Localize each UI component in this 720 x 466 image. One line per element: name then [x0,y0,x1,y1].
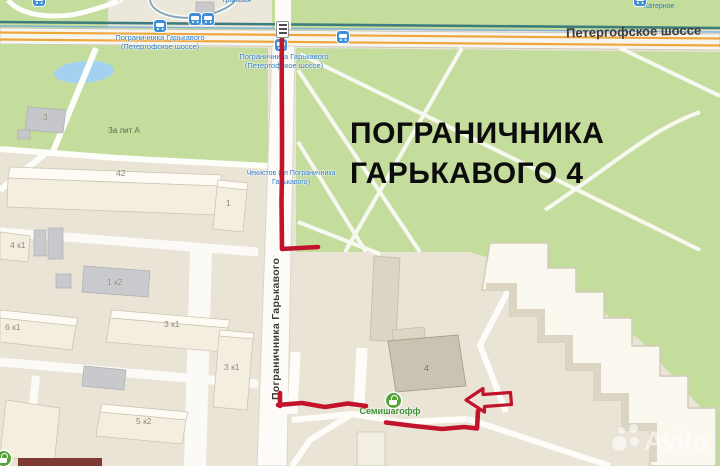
building-label: 3 [43,112,48,122]
area-label-za-lit-a: За лит А [108,126,140,135]
avito-logo-icon [630,437,639,446]
building-label: 1 [226,198,231,208]
bus-stop-icon[interactable] [33,0,45,6]
highway-street-label: Петергофское шоссе [566,23,701,41]
building-label: 1 к2 [107,277,123,287]
building-label: 3 к1 [164,319,180,329]
map-base-layer [0,0,720,466]
bus-stop-icon[interactable] [154,20,166,32]
avito-logo-icon [629,424,638,433]
watermark: Avito [608,420,720,464]
area-label-katernoe: Катерное [644,3,674,10]
route-start-marker-icon [276,21,289,38]
bus-stop-label: Пограничника Гарькавого(Петергофское шос… [102,34,218,51]
building-label: 3 к1 [224,362,240,372]
bus-stop-icon[interactable] [275,39,287,51]
bus-stop-label: Чекистов (ул ПограничникаГарькавого) [238,170,344,187]
tram-stop-icon[interactable] [189,13,201,25]
bus-stop-label: Пограничника Гарькавого(Петергофское шос… [228,53,340,70]
avito-logo-icon [618,427,625,434]
building-label: 5 к2 [136,416,152,426]
store-label[interactable]: Семишагофф [350,406,430,416]
main-street-label: Пограничника Гарькавого [270,248,282,400]
page-title: ПОГРАНИЧНИКА ГАРЬКАВОГО 4 [350,114,604,194]
watermark-text: Avito [644,426,708,457]
avito-logo-icon [612,436,627,451]
area-label-tram: трамвая [222,0,251,4]
bus-stop-icon[interactable] [337,31,349,43]
building-label: 4 к1 [10,240,26,250]
map-canvas[interactable]: Пограничника Гарькавого(Петергофское шос… [0,0,720,466]
building-label: 42 [116,168,125,178]
tram-stop-icon[interactable] [202,13,214,25]
building-label: 4 [424,363,429,373]
bus-stop-icon[interactable] [634,0,646,6]
building-label: 6 к1 [5,322,21,332]
